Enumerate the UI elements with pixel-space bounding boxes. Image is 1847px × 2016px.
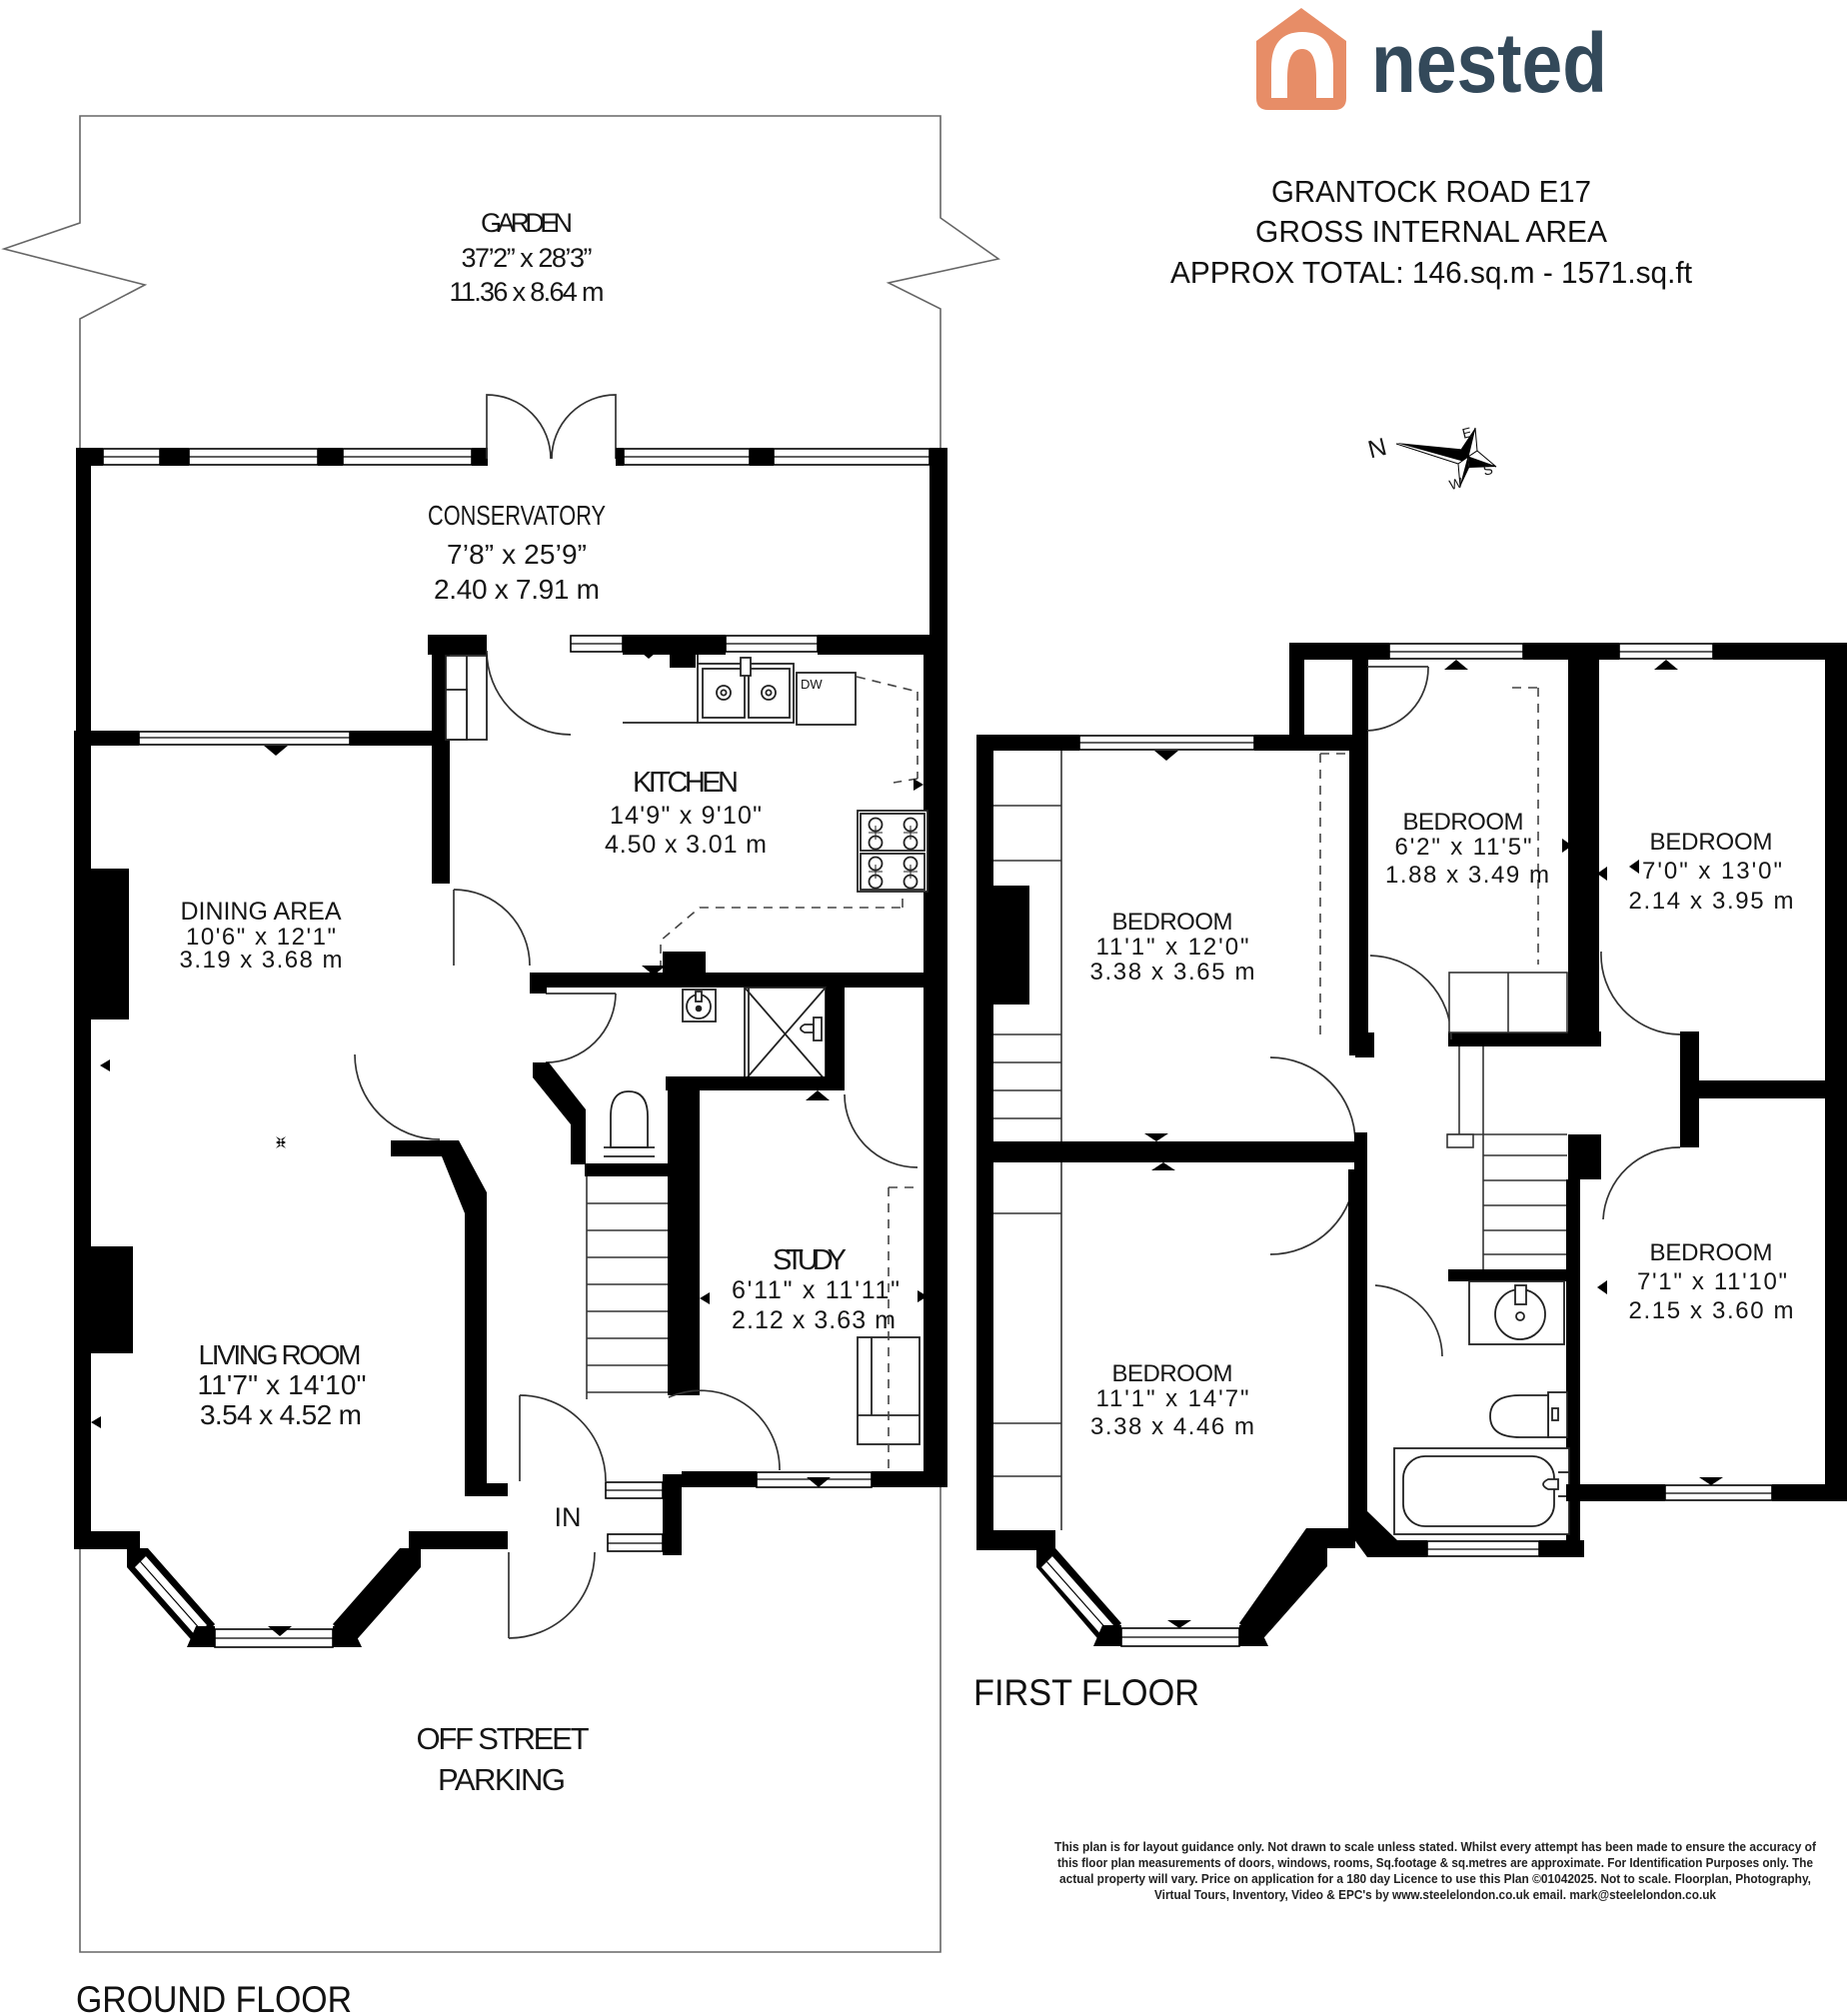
svg-text:GARDEN: GARDEN [481,208,573,238]
svg-text:FIRST FLOOR: FIRST FLOOR [973,1672,1199,1713]
svg-text:2.15 x 3.60 m: 2.15 x 3.60 m [1629,1297,1794,1324]
svg-text:11'1" x 14'7": 11'1" x 14'7" [1096,1385,1249,1412]
svg-text:7'1" x 11'10": 7'1" x 11'10" [1637,1268,1787,1295]
svg-text:BEDROOM: BEDROOM [1112,909,1233,936]
svg-text:LIVING ROOM: LIVING ROOM [199,1339,362,1370]
svg-text:BEDROOM: BEDROOM [1650,829,1773,856]
svg-text:7'0" x 13'0": 7'0" x 13'0" [1642,858,1782,885]
svg-text:11'1" x 12'0": 11'1" x 12'0" [1096,934,1249,961]
svg-text:BEDROOM: BEDROOM [1650,1239,1773,1266]
svg-text:2.40 x 7.91 m: 2.40 x 7.91 m [434,574,600,605]
svg-text:4.50 x 3.01 m: 4.50 x 3.01 m [605,831,767,859]
svg-text:OFF STREET: OFF STREET [417,1721,590,1756]
svg-text:KITCHEN: KITCHEN [633,767,739,799]
svg-text:GROSS INTERNAL AREA: GROSS INTERNAL AREA [1255,214,1607,249]
svg-text:IN: IN [555,1502,582,1532]
svg-text:11.36 x 8.64 m: 11.36 x 8.64 m [450,277,605,307]
svg-text:BEDROOM: BEDROOM [1403,809,1524,836]
svg-text:BEDROOM: BEDROOM [1112,1360,1233,1387]
svg-text:GRANTOCK ROAD E17: GRANTOCK ROAD E17 [1271,174,1591,209]
svg-text:3.38 x 4.46 m: 3.38 x 4.46 m [1090,1413,1254,1440]
svg-text:DW: DW [801,677,823,692]
svg-text:actual property will vary. Pri: actual property will vary. Price on appl… [1059,1871,1811,1886]
svg-text:this floor plan measurements o: this floor plan measurements of doors, w… [1057,1855,1813,1870]
svg-text:This plan is for layout guidan: This plan is for layout guidance only. N… [1054,1839,1817,1854]
svg-text:3.19 x 3.68 m: 3.19 x 3.68 m [180,947,343,974]
svg-text:STUDY: STUDY [773,1244,847,1276]
svg-text:2.12 x 3.63 m: 2.12 x 3.63 m [732,1306,896,1334]
svg-text:3.38 x 3.65 m: 3.38 x 3.65 m [1090,959,1255,986]
svg-text:nested: nested [1371,16,1607,110]
svg-text:7’8” x 25’9”: 7’8” x 25’9” [447,539,587,570]
svg-text:37’2” x 28’3”: 37’2” x 28’3” [462,243,593,273]
svg-text:PARKING: PARKING [438,1762,566,1797]
svg-text:1.88 x 3.49 m: 1.88 x 3.49 m [1385,862,1549,889]
svg-text:2.14 x 3.95 m: 2.14 x 3.95 m [1629,888,1794,915]
svg-text:APPROX TOTAL: 146.sq.m - 1571.: APPROX TOTAL: 146.sq.m - 1571.sq.ft [1170,255,1692,290]
svg-text:11'7" x 14'10": 11'7" x 14'10" [198,1369,367,1400]
svg-text:14'9" x 9'10": 14'9" x 9'10" [610,802,762,830]
svg-text:Virtual Tours, Inventory, Vide: Virtual Tours, Inventory, Video & EPC's … [1154,1887,1717,1902]
svg-text:DINING AREA: DINING AREA [181,898,342,926]
svg-text:CONSERVATORY: CONSERVATORY [428,500,606,531]
svg-text:3.54 x 4.52 m: 3.54 x 4.52 m [200,1399,362,1430]
svg-text:GROUND FLOOR: GROUND FLOOR [76,1979,352,2016]
